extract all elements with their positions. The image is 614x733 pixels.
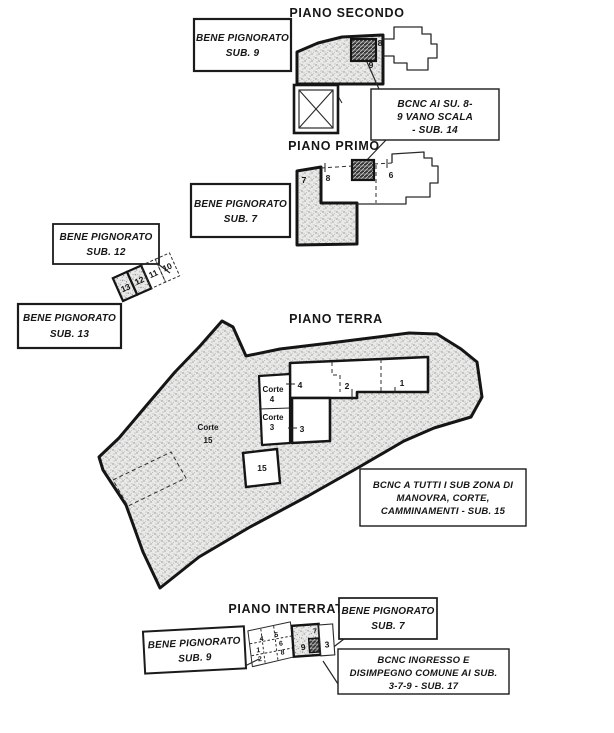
cadastral-plan-page: PIANO SECONDO BENE PIGNORATO SUB. 9 8 9 … [0,0,614,733]
label-box-sub7-primo-line1: BENE PIGNORATO [194,199,287,210]
label-box-bcnc-ingresso-line3: 3-7-9 - SUB. 17 [389,681,459,692]
corte4-label-word: Corte [263,385,284,394]
corte3-label-word: Corte [263,413,284,422]
label-box-sub9-interrato-line2: SUB. 9 [178,652,212,665]
terrace-x-box [294,85,338,133]
label-box-sub13-line1: BENE PIGNORATO [23,313,116,324]
interrato-label-3: 3 [324,639,330,649]
interrato-label-5: 5 [274,632,278,639]
label-box-bcnc-ingresso-line1: BCNC INGRESSO E [377,655,470,666]
interrato-dashed-block-outline [247,622,295,667]
label-box-sub9-secondo [194,19,291,71]
terra-label-3: 3 [300,424,305,434]
piano-interrato-title: PIANO INTERRATO [228,602,353,616]
piano-primo-label-6: 6 [389,170,394,180]
label-box-sub7-primo [191,184,290,237]
piano-primo-label-8: 8 [326,173,331,183]
label-box-bcnc-ingresso-line2: DISIMPEGNO COMUNE AI SUB. [350,668,498,679]
label-box-sub12 [53,224,159,264]
piano-secondo-label-8: 8 [378,38,383,48]
label-box-sub7-interrato-line1: BENE PIGNORATO [342,606,435,617]
label-box-sub13-line2: SUB. 13 [50,329,89,340]
interrato-stair-hatch [309,638,320,653]
garage-section: BENE PIGNORATO SUB. 12 13 12 11 10 BENE … [18,224,180,348]
interrato-label-4: 4 [259,636,263,643]
label-box-sub13 [18,304,121,348]
corte15-label-word: Corte [198,423,219,432]
leader-bcnc-ingresso [323,661,338,684]
piano-terra-lower-room [292,398,330,443]
label-box-bcnc-terra-line2: MANOVRA, CORTE, [396,493,489,504]
label-box-sub12-line2: SUB. 12 [86,247,125,258]
corte4-label-num: 4 [270,395,275,404]
piano-secondo-building-outline [383,27,437,70]
interrato-label-8: 8 [280,649,284,656]
terra-label-1: 1 [400,378,405,388]
piano-terra-section: PIANO TERRA 4 2 1 3 Corte 4 Corte 3 Cort… [99,312,526,588]
label-box-sub7-primo-line2: SUB. 7 [224,214,258,225]
piano-terra-building-rooms [290,357,428,398]
label-box-bcnc-scala-line2: 9 VANO SCALA [397,112,473,123]
piano-terra-title: PIANO TERRA [289,312,383,326]
piano-primo-title: PIANO PRIMO [288,139,380,153]
piano-primo-stairwell-hatch [352,160,374,180]
piano-secondo-title: PIANO SECONDO [289,6,404,20]
label-box-sub9-secondo-line2: SUB. 9 [226,48,260,59]
piano-primo-section: PIANO PRIMO 7 8 6 BENE PIGNORATO SUB. 7 [191,139,438,245]
terra-square-15-label: 15 [257,463,267,473]
label-box-bcnc-terra-line3: CAMMINAMENTI - SUB. 15 [381,506,506,517]
label-box-bcnc-terra-line1: BCNC A TUTTI I SUB ZONA DI [373,480,513,491]
cadastral-floor-plan-svg: PIANO SECONDO BENE PIGNORATO SUB. 9 8 9 … [0,0,614,733]
label-box-sub12-line1: BENE PIGNORATO [60,232,153,243]
piano-secondo-stairwell-hatch [351,39,376,61]
garage-label-11: 11 [147,267,160,280]
label-box-bcnc-scala-line3: - SUB. 14 [412,125,458,136]
interrato-plan: 4 5 1 2 6 8 9 7 3 [247,619,335,667]
label-box-sub7-interrato [339,598,437,639]
piano-primo-label-7: 7 [302,175,307,185]
label-box-sub9-secondo-line1: BENE PIGNORATO [196,33,289,44]
terra-label-2: 2 [345,381,350,391]
interrato-label-6: 6 [279,640,283,647]
interrato-label-7: 7 [313,628,317,635]
label-box-bcnc-scala-line1: BCNC AI SU. 8- [397,99,473,110]
sub9-interrato-box-group: BENE PIGNORATO SUB. 9 [143,626,246,673]
garage-label-10: 10 [161,260,174,273]
label-box-sub7-interrato-line2: SUB. 7 [371,621,405,632]
corte3-label-num: 3 [270,423,275,432]
interrato-label-9: 9 [300,642,306,652]
corte15-label-num: 15 [204,436,213,445]
terra-label-4: 4 [298,380,303,390]
piano-interrato-section: PIANO INTERRATO BENE PIGNORATO SUB. 7 4 … [143,598,509,694]
interrato-label-1: 1 [256,647,260,654]
